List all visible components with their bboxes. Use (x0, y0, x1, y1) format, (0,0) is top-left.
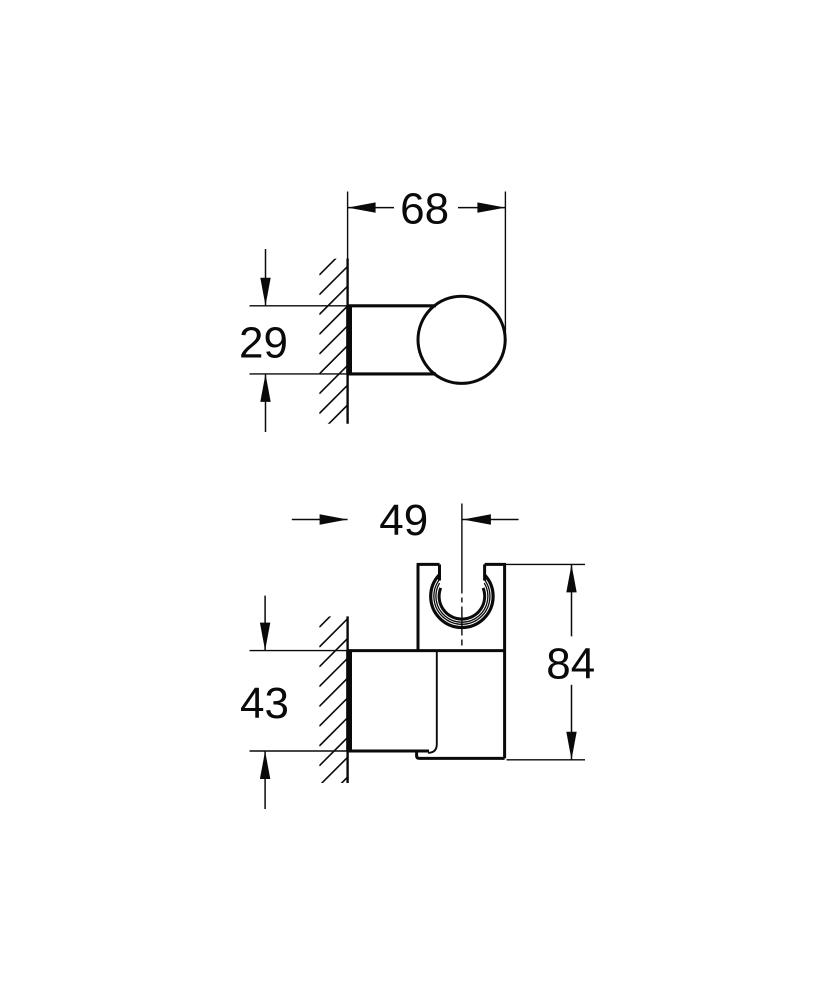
svg-text:84: 84 (546, 640, 595, 689)
svg-text:43: 43 (240, 679, 289, 728)
svg-text:68: 68 (400, 185, 449, 234)
svg-text:29: 29 (239, 319, 288, 368)
svg-text:49: 49 (379, 496, 428, 545)
